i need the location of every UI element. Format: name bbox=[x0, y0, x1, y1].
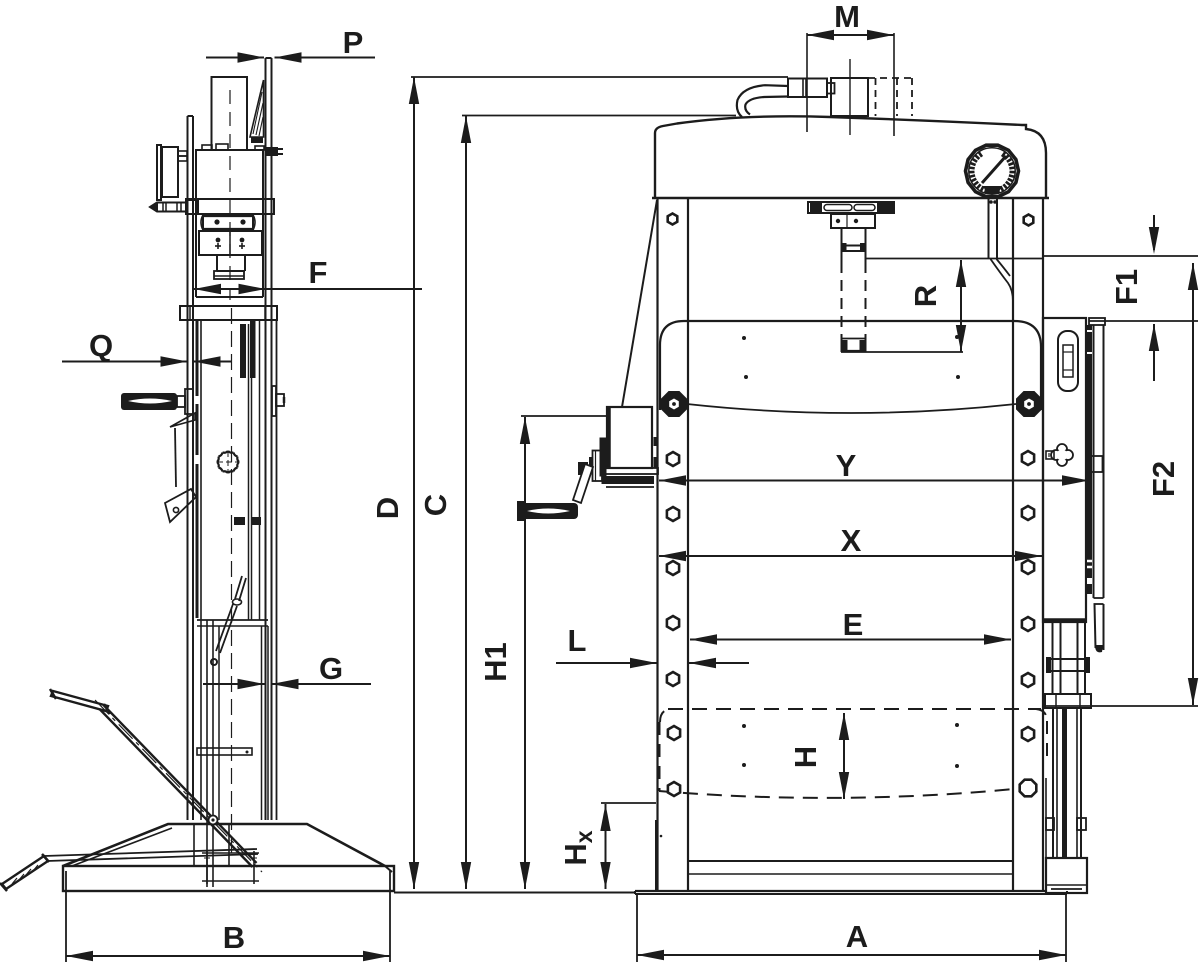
svg-text:P: P bbox=[343, 25, 364, 60]
svg-text:F1: F1 bbox=[1109, 269, 1144, 305]
svg-text:C: C bbox=[418, 494, 453, 516]
svg-text:H1: H1 bbox=[478, 642, 513, 682]
svg-text:Y: Y bbox=[836, 448, 857, 483]
svg-text:R: R bbox=[908, 285, 943, 307]
svg-text:G: G bbox=[319, 651, 343, 686]
svg-text:M: M bbox=[834, 0, 860, 34]
svg-text:H: H bbox=[788, 746, 823, 768]
svg-text:X: X bbox=[841, 523, 862, 558]
svg-text:Q: Q bbox=[89, 328, 113, 363]
svg-text:F: F bbox=[309, 255, 328, 290]
svg-text:L: L bbox=[568, 623, 587, 658]
svg-text:D: D bbox=[370, 497, 405, 519]
svg-text:A: A bbox=[846, 919, 868, 954]
svg-text:F2: F2 bbox=[1146, 461, 1181, 497]
svg-text:E: E bbox=[843, 607, 864, 642]
svg-text:B: B bbox=[223, 920, 245, 955]
